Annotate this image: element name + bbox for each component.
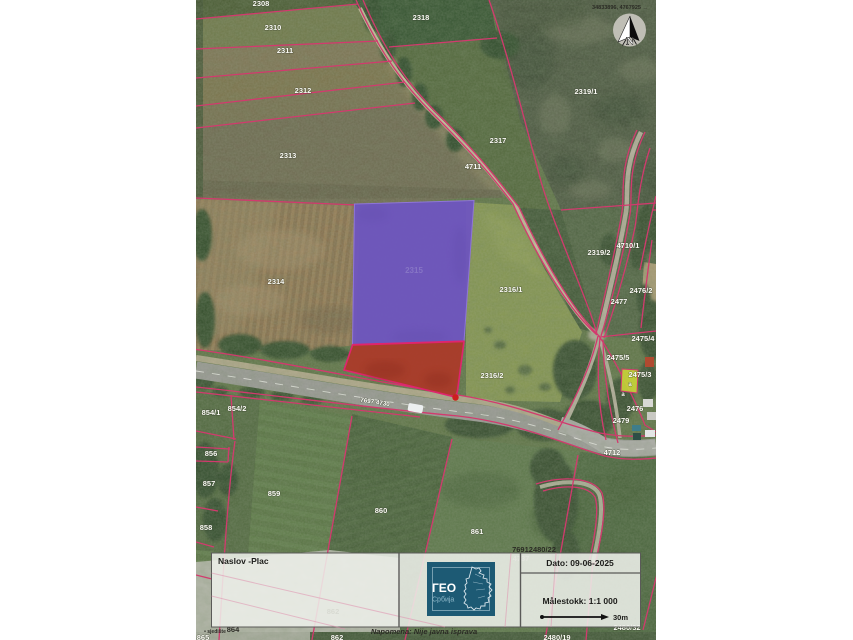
svg-text:862: 862	[327, 607, 340, 616]
svg-text:Målestokk: 1:1 000: Målestokk: 1:1 000	[542, 596, 617, 606]
svg-text:Napomena: Nije javna isprava: Napomena: Nije javna isprava	[371, 627, 477, 636]
svg-text:4712: 4712	[604, 448, 621, 457]
svg-text:N: N	[626, 36, 634, 48]
svg-text:2315: 2315	[405, 266, 423, 275]
svg-text:Naslov -Plac: Naslov -Plac	[218, 556, 269, 566]
svg-text:2317: 2317	[490, 136, 507, 145]
svg-text:854/2: 854/2	[228, 404, 247, 413]
svg-text:2475/5: 2475/5	[607, 353, 630, 362]
svg-text:2316/2: 2316/2	[481, 371, 504, 380]
svg-text:857: 857	[203, 479, 216, 488]
svg-text:2476/2: 2476/2	[630, 286, 653, 295]
svg-text:2475/3: 2475/3	[629, 370, 652, 379]
svg-text:• sjedište: • sjedište	[204, 629, 226, 635]
svg-text:2312: 2312	[295, 86, 312, 95]
svg-text:2310: 2310	[265, 23, 282, 32]
svg-text:2477: 2477	[611, 297, 628, 306]
svg-text:ГЕО: ГЕО	[432, 581, 456, 595]
svg-text:2480/19: 2480/19	[543, 633, 570, 640]
svg-text:859: 859	[268, 489, 281, 498]
svg-text:861: 861	[471, 527, 484, 536]
svg-text:30m: 30m	[613, 613, 628, 622]
svg-text:2314: 2314	[268, 277, 286, 286]
svg-text:2476: 2476	[627, 404, 644, 413]
svg-text:2313: 2313	[280, 151, 297, 160]
svg-text:2311: 2311	[277, 46, 293, 55]
svg-text:4710/1: 4710/1	[617, 241, 640, 250]
svg-text:2308: 2308	[253, 0, 270, 8]
svg-text:2319/2: 2319/2	[588, 248, 611, 257]
svg-text:860: 860	[375, 506, 388, 515]
svg-text:2316/1: 2316/1	[500, 285, 523, 294]
svg-text:856: 856	[205, 449, 218, 458]
svg-text:2479: 2479	[613, 416, 630, 425]
svg-text:2318: 2318	[413, 13, 430, 22]
svg-text:4711: 4711	[465, 162, 481, 171]
svg-text:34833896, 4767925 →: 34833896, 4767925 →	[592, 5, 648, 11]
svg-text:2475/4: 2475/4	[632, 334, 656, 343]
svg-text:854/1: 854/1	[202, 408, 221, 417]
svg-text:2319/1: 2319/1	[575, 87, 598, 96]
svg-text:858: 858	[200, 523, 213, 532]
svg-text:862: 862	[331, 633, 344, 640]
svg-text:Србија: Србија	[432, 596, 454, 604]
svg-text:Dato: 09-06-2025: Dato: 09-06-2025	[546, 558, 614, 568]
